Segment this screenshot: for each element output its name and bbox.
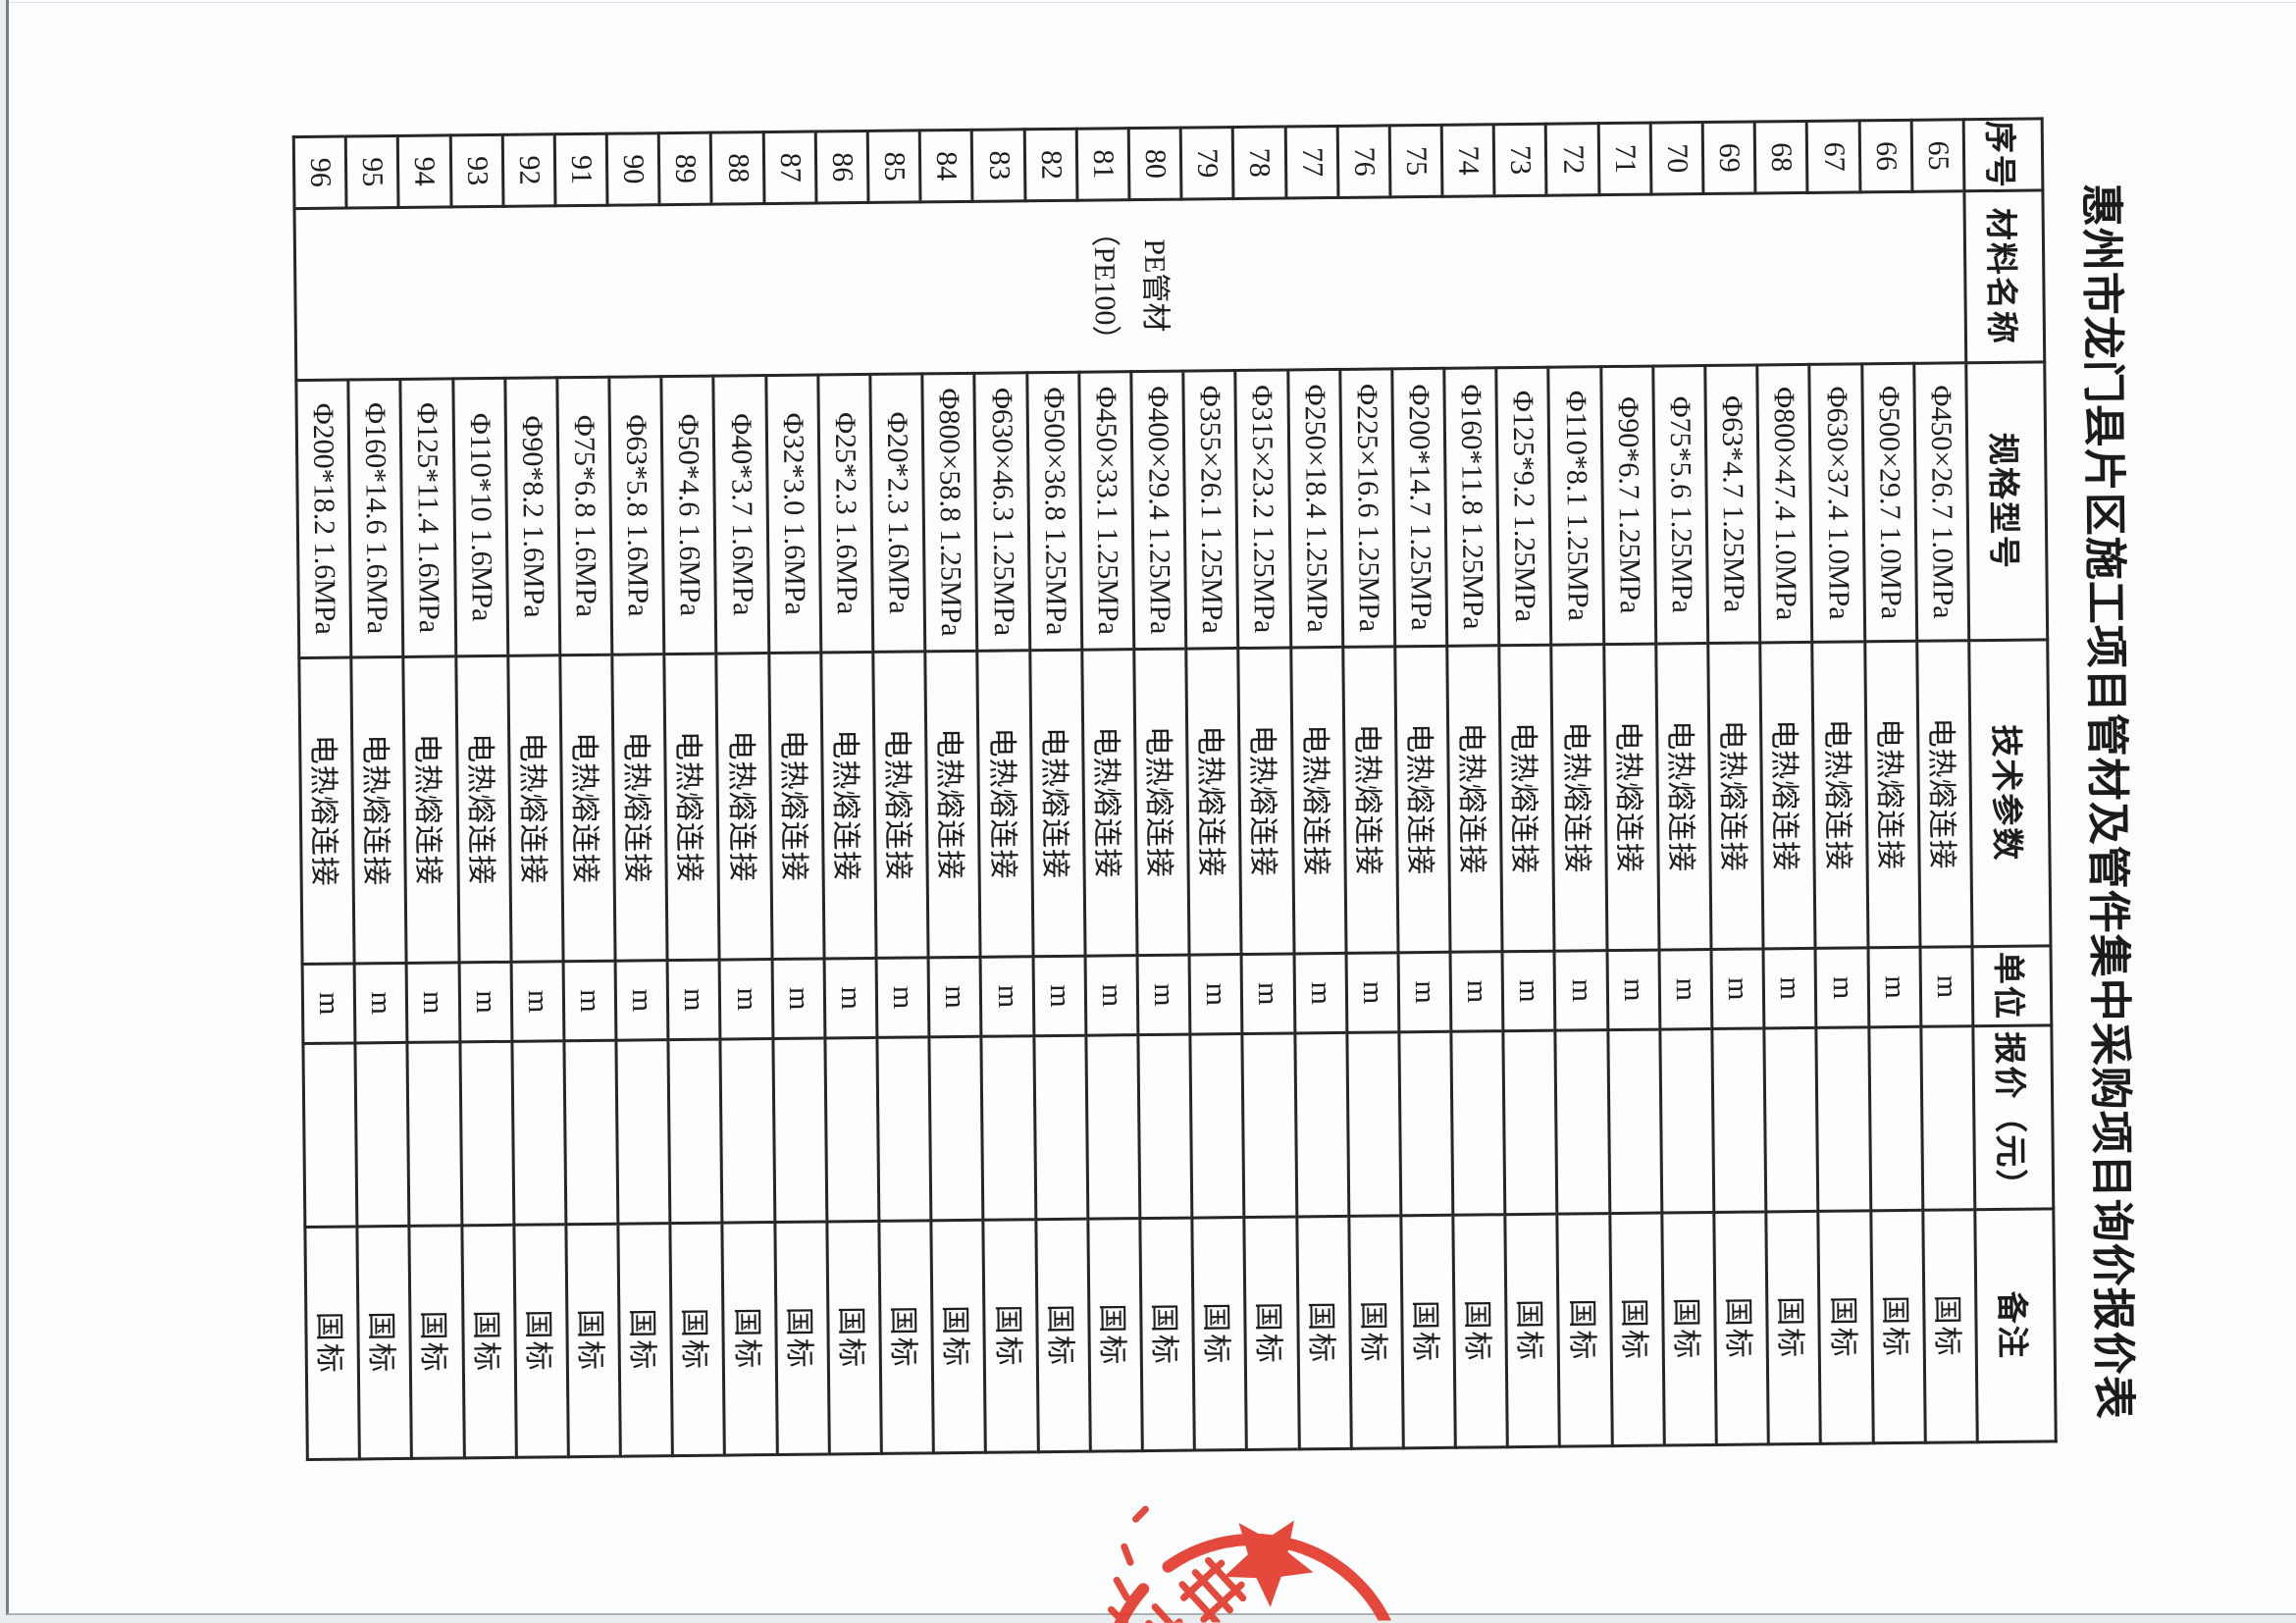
cell-remark: 国标 <box>461 1225 516 1458</box>
cell-remark: 国标 <box>618 1224 673 1457</box>
cell-price <box>1921 1026 1975 1211</box>
cell-tech: 电热熔连接 <box>1656 644 1711 951</box>
cell-tech: 电热熔连接 <box>1343 647 1398 954</box>
cell-price <box>303 1043 357 1228</box>
cell-price <box>1190 1034 1244 1219</box>
cell-tech: 电热熔连接 <box>403 656 458 964</box>
cell-spec: Φ63*5.8 1.6MPa <box>609 377 664 655</box>
cell-unit: m <box>1346 953 1399 1033</box>
page-title: 惠州市龙门县片区施工项目管材及管件集中采购项目询价报价表 <box>2071 0 2151 1613</box>
cell-unit: m <box>824 958 877 1038</box>
cell-remark: 国标 <box>1662 1212 1717 1445</box>
cell-remark: 国标 <box>1557 1214 1612 1447</box>
cell-unit: m <box>928 957 981 1037</box>
cell-remark: 国标 <box>1192 1217 1247 1450</box>
cell-serial: 94 <box>398 135 451 208</box>
cell-unit: m <box>406 963 459 1043</box>
cell-remark: 国标 <box>357 1226 412 1459</box>
header-tech: 技术参数 <box>1969 640 2051 947</box>
cell-tech: 电热熔连接 <box>1082 650 1137 957</box>
cell-unit: m <box>302 964 355 1044</box>
cell-tech: 电热熔连接 <box>716 654 771 961</box>
cell-spec: Φ32*3.0 1.6MPa <box>766 375 821 654</box>
cell-unit: m <box>563 961 616 1041</box>
cell-price <box>512 1041 566 1226</box>
cell-tech: 电热熔连接 <box>508 655 563 963</box>
cell-price <box>1816 1027 1870 1212</box>
cell-price <box>773 1038 827 1223</box>
cell-tech: 电热熔连接 <box>1290 647 1345 954</box>
cell-price <box>1660 1028 1714 1213</box>
cell-tech: 电热熔连接 <box>612 654 667 962</box>
cell-spec: Φ110*8.1 1.25MPa <box>1548 367 1603 646</box>
cell-unit: m <box>772 959 825 1039</box>
cell-spec: Φ225×16.6 1.25MPa <box>1340 369 1395 648</box>
cell-remark: 国标 <box>514 1225 569 1458</box>
cell-price <box>929 1036 983 1221</box>
cell-unit: m <box>1502 951 1555 1031</box>
cell-serial: 91 <box>554 133 607 206</box>
cell-serial: 89 <box>659 132 712 205</box>
cell-unit: m <box>615 961 668 1041</box>
cell-unit: m <box>1607 950 1660 1030</box>
cell-spec: Φ40*3.7 1.6MPa <box>713 376 768 654</box>
header-unit: 单位 <box>1972 946 2052 1026</box>
cell-spec: Φ75*5.6 1.25MPa <box>1653 366 1708 645</box>
cell-tech: 电热熔连接 <box>977 651 1032 958</box>
cell-spec: Φ500×36.8 1.25MPa <box>1026 372 1081 651</box>
cell-tech: 电热熔连接 <box>351 656 406 964</box>
scanned-page: 惠州市龙门县片区施工项目管材及管件集中采购项目询价报价表 序号 材料名称 规格型… <box>0 0 2296 1623</box>
cell-serial: 80 <box>1128 128 1181 200</box>
cell-tech: 电热熔连接 <box>1917 641 1972 948</box>
cell-unit: m <box>667 960 720 1040</box>
cell-remark: 国标 <box>409 1226 464 1459</box>
cell-serial: 93 <box>450 134 503 207</box>
cell-price <box>355 1042 409 1227</box>
cell-remark: 国标 <box>1401 1215 1456 1448</box>
cell-price <box>1712 1028 1766 1213</box>
cell-price <box>825 1037 879 1222</box>
cell-spec: Φ160*14.6 1.6MPa <box>348 379 403 657</box>
cell-serial: 71 <box>1598 123 1651 195</box>
cell-remark: 国标 <box>931 1220 986 1453</box>
cell-price <box>1608 1029 1662 1214</box>
cell-unit: m <box>459 962 512 1042</box>
cell-remark: 国标 <box>827 1221 882 1454</box>
cell-serial: 81 <box>1076 129 1129 201</box>
cell-unit: m <box>1920 947 1973 1027</box>
cell-serial: 67 <box>1807 121 1860 193</box>
cell-price <box>1764 1027 1818 1212</box>
cell-tech: 电热熔连接 <box>455 655 510 963</box>
cell-spec: Φ800×47.4 1.0MPa <box>1757 364 1812 643</box>
cell-spec: Φ400×29.4 1.25MPa <box>1131 371 1186 650</box>
quotation-table: 序号 材料名称 规格型号 技术参数 单位 报价（元） 备注 65PE管材（PE1… <box>292 117 2058 1461</box>
header-spec: 规格型号 <box>1966 362 2048 641</box>
cell-spec: Φ110*10 1.6MPa <box>452 378 507 656</box>
cell-remark: 国标 <box>1505 1214 1560 1447</box>
cell-price <box>1555 1030 1609 1215</box>
cell-unit: m <box>1763 948 1816 1028</box>
cell-spec: Φ315×23.2 1.25MPa <box>1235 370 1290 649</box>
cell-remark: 国标 <box>1453 1215 1508 1448</box>
cell-serial: 85 <box>867 131 920 203</box>
cell-remark: 国标 <box>305 1227 360 1460</box>
cell-spec: Φ63*4.7 1.25MPa <box>1705 365 1760 644</box>
cell-remark: 国标 <box>775 1222 830 1455</box>
cell-tech: 电热熔连接 <box>821 652 876 959</box>
cell-serial: 68 <box>1754 121 1807 193</box>
cell-serial: 83 <box>972 130 1025 202</box>
cell-serial: 72 <box>1546 124 1599 196</box>
cell-price <box>1347 1032 1401 1217</box>
cell-remark: 国标 <box>1818 1211 1873 1444</box>
cell-spec: Φ90*8.2 1.6MPa <box>505 378 560 656</box>
cell-tech: 电热熔连接 <box>925 651 980 958</box>
cell-serial: 73 <box>1493 124 1546 196</box>
cell-spec: Φ800×58.8 1.25MPa <box>922 373 977 652</box>
header-serial: 序号 <box>1963 119 2043 191</box>
cell-tech: 电热熔连接 <box>560 654 615 962</box>
cell-serial: 96 <box>293 136 346 209</box>
cell-tech: 电热熔连接 <box>1395 646 1450 953</box>
cell-price <box>1138 1034 1192 1219</box>
cell-unit: m <box>1033 956 1086 1036</box>
cell-tech: 电热熔连接 <box>768 653 823 960</box>
cell-unit: m <box>876 958 929 1038</box>
cell-unit: m <box>1555 951 1608 1031</box>
cell-remark: 国标 <box>1035 1219 1090 1452</box>
cell-spec: Φ630×37.4 1.0MPa <box>1809 364 1864 643</box>
cell-price <box>1034 1035 1088 1220</box>
red-seal-stamp <box>1027 1449 1443 1623</box>
header-remark: 备注 <box>1975 1209 2056 1442</box>
cell-tech: 电热熔连接 <box>1134 649 1189 956</box>
cell-tech: 电热熔连接 <box>1029 650 1084 957</box>
cell-unit: m <box>720 960 773 1040</box>
cell-remark: 国标 <box>1296 1216 1351 1449</box>
cell-spec: Φ630×46.3 1.25MPa <box>974 373 1029 652</box>
cell-remark: 国标 <box>566 1224 621 1457</box>
cell-serial: 75 <box>1389 125 1442 197</box>
cell-tech: 电热熔连接 <box>1499 645 1554 952</box>
cell-remark: 国标 <box>670 1223 725 1456</box>
cell-tech: 电热熔连接 <box>1812 642 1867 949</box>
cell-unit: m <box>1241 954 1294 1034</box>
cell-tech: 电热熔连接 <box>1551 645 1606 952</box>
cell-unit: m <box>1868 947 1921 1027</box>
cell-tech: 电热熔连接 <box>664 654 719 961</box>
cell-remark: 国标 <box>722 1223 777 1456</box>
cell-serial: 65 <box>1911 120 1964 192</box>
cell-unit: m <box>511 962 564 1042</box>
cell-price <box>877 1037 931 1222</box>
cell-unit: m <box>1398 952 1451 1032</box>
rotated-document: 惠州市龙门县片区施工项目管材及管件集中采购项目询价报价表 序号 材料名称 规格型… <box>0 0 2296 1623</box>
cell-serial: 78 <box>1233 127 1286 199</box>
cell-price <box>1451 1031 1505 1216</box>
cell-remark: 国标 <box>1870 1210 1925 1443</box>
cell-price <box>720 1039 774 1224</box>
cell-spec: Φ75*6.8 1.6MPa <box>557 377 612 655</box>
cell-tech: 电热熔连接 <box>1760 642 1815 949</box>
cell-unit: m <box>1711 949 1764 1029</box>
cell-tech: 电热熔连接 <box>1708 643 1763 950</box>
cell-spec: Φ200*14.7 1.25MPa <box>1392 368 1447 647</box>
cell-price <box>1503 1030 1557 1215</box>
cell-tech: 电热熔连接 <box>1864 641 1919 948</box>
cell-unit: m <box>980 957 1033 1037</box>
cell-spec: Φ355×26.1 1.25MPa <box>1183 371 1238 650</box>
cell-price <box>981 1036 1035 1221</box>
cell-remark: 国标 <box>1610 1213 1665 1446</box>
cell-serial: 84 <box>919 130 972 202</box>
cell-price <box>1086 1035 1140 1220</box>
cell-tech: 电热熔连接 <box>1238 648 1293 955</box>
cell-price <box>616 1040 670 1225</box>
header-row: 序号 材料名称 规格型号 技术参数 单位 报价（元） 备注 <box>1963 119 2056 1442</box>
cell-serial: 86 <box>815 131 868 203</box>
cell-price <box>459 1041 513 1226</box>
cell-spec: Φ50*4.6 1.6MPa <box>661 376 716 654</box>
cell-price <box>1399 1031 1453 1216</box>
cell-serial: 74 <box>1441 125 1494 197</box>
seal-star <box>1220 1506 1326 1615</box>
cell-serial: 90 <box>606 133 659 206</box>
cell-serial: 70 <box>1650 123 1703 195</box>
cell-serial: 95 <box>345 135 398 208</box>
cell-spec: Φ200*18.2 1.6MPa <box>296 380 351 658</box>
cell-serial: 88 <box>711 132 764 205</box>
cell-remark: 国标 <box>1714 1212 1769 1445</box>
cell-remark: 国标 <box>1140 1218 1195 1451</box>
cell-price <box>1242 1033 1296 1218</box>
cell-price <box>668 1039 722 1224</box>
cell-serial: 66 <box>1859 120 1912 192</box>
cell-unit: m <box>1659 949 1712 1029</box>
cell-remark: 国标 <box>1766 1211 1821 1444</box>
cell-price <box>407 1042 461 1227</box>
cell-spec: Φ160*11.8 1.25MPa <box>1444 368 1499 647</box>
cell-serial: 92 <box>502 134 555 207</box>
cell-remark: 国标 <box>879 1221 934 1454</box>
cell-tech: 电热熔连接 <box>873 652 928 959</box>
cell-spec: Φ500×29.7 1.0MPa <box>1861 363 1916 642</box>
cell-spec: Φ450×26.7 1.0MPa <box>1914 363 1969 642</box>
cell-unit: m <box>1189 955 1242 1035</box>
cell-serial: 87 <box>763 131 816 204</box>
cell-spec: Φ25*2.3 1.6MPa <box>818 374 873 653</box>
cell-remark: 国标 <box>1923 1210 1978 1443</box>
cell-remark: 国标 <box>1244 1217 1299 1450</box>
material-name-line2: （PE100） <box>1079 201 1131 371</box>
cell-unit: m <box>1294 953 1347 1033</box>
cell-spec: Φ125*9.2 1.25MPa <box>1496 367 1551 646</box>
cell-unit: m <box>1450 952 1503 1032</box>
cell-price <box>1294 1032 1348 1217</box>
header-material: 材料名称 <box>1964 190 2045 363</box>
cell-remark: 国标 <box>1088 1219 1143 1452</box>
cell-tech: 电热熔连接 <box>1447 646 1502 953</box>
cell-remark: 国标 <box>983 1220 1038 1453</box>
cell-tech: 电热熔连接 <box>299 657 354 965</box>
cell-spec: Φ450×33.1 1.25MPa <box>1079 372 1134 651</box>
cell-spec: Φ250×18.4 1.25MPa <box>1287 369 1342 648</box>
cell-serial: 82 <box>1024 129 1077 201</box>
cell-unit: m <box>1137 955 1190 1035</box>
cell-tech: 电热熔连接 <box>1603 644 1658 951</box>
cell-price <box>1868 1026 1922 1211</box>
cell-material-name: PE管材（PE100） <box>294 191 1966 381</box>
material-name-line1: PE管材 <box>1129 201 1181 371</box>
cell-serial: 77 <box>1285 126 1338 198</box>
cell-serial: 69 <box>1702 122 1755 194</box>
cell-unit: m <box>354 963 407 1043</box>
cell-price <box>564 1040 618 1225</box>
cell-remark: 国标 <box>1349 1216 1404 1449</box>
cell-serial: 76 <box>1337 126 1390 198</box>
cell-serial: 79 <box>1180 128 1233 200</box>
cell-unit: m <box>1085 956 1138 1036</box>
cell-spec: Φ90*6.7 1.25MPa <box>1600 366 1655 645</box>
cell-spec: Φ20*2.3 1.6MPa <box>870 374 925 653</box>
cell-tech: 电热熔连接 <box>1186 649 1241 956</box>
header-price: 报价（元） <box>1973 1025 2054 1210</box>
cell-spec: Φ125*11.4 1.6MPa <box>400 379 455 657</box>
cell-unit: m <box>1815 948 1868 1028</box>
